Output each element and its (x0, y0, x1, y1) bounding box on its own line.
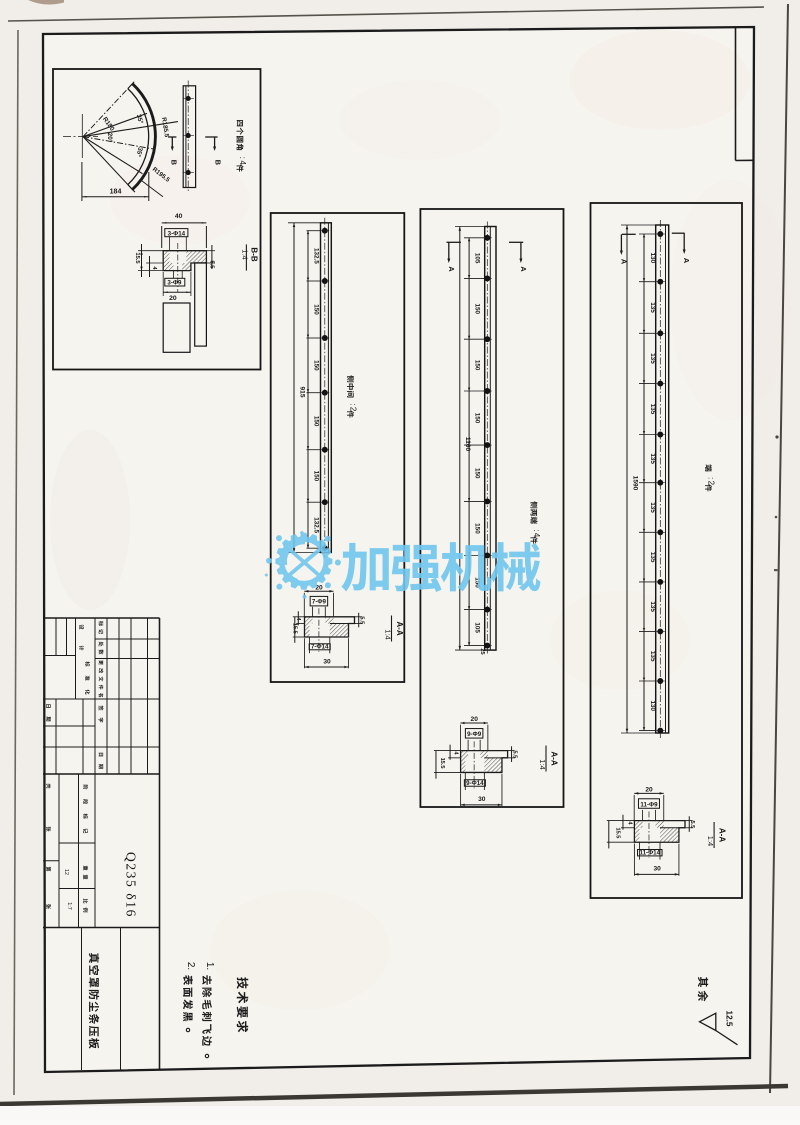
svg-text:150: 150 (312, 304, 319, 315)
svg-text:20°: 20° (106, 133, 114, 143)
svg-text:40: 40 (175, 213, 183, 220)
svg-text::: : (532, 529, 541, 531)
svg-text:30: 30 (653, 866, 661, 873)
svg-text:5.5: 5.5 (689, 820, 695, 828)
svg-text:15.5: 15.5 (134, 252, 140, 264)
svg-text:5.5: 5.5 (208, 260, 214, 269)
svg-text:5.5: 5.5 (511, 750, 517, 758)
svg-text:20: 20 (645, 786, 653, 793)
svg-text:135: 135 (649, 601, 656, 612)
svg-text:135: 135 (649, 453, 656, 464)
svg-text:135: 135 (649, 353, 656, 364)
svg-text:A-A: A-A (718, 828, 727, 842)
svg-text:11-Φ14: 11-Φ14 (640, 850, 661, 857)
svg-text:B: B (213, 160, 222, 166)
svg-text:A-A: A-A (395, 621, 404, 635)
svg-text:150: 150 (474, 413, 481, 424)
svg-text:4: 4 (532, 533, 541, 538)
svg-text:A: A (519, 266, 528, 272)
svg-text:15.5: 15.5 (614, 827, 620, 838)
svg-text:1:4: 1:4 (706, 836, 715, 846)
svg-text:1590: 1590 (631, 476, 638, 491)
svg-text:150: 150 (474, 360, 481, 371)
svg-text:184: 184 (110, 188, 122, 195)
svg-text:105: 105 (474, 622, 481, 633)
svg-text::: : (238, 157, 247, 159)
svg-text:150: 150 (474, 304, 481, 315)
svg-text:2: 2 (349, 407, 358, 411)
svg-text:915: 915 (298, 386, 305, 397)
svg-text:150: 150 (312, 416, 319, 427)
svg-text:5.5: 5.5 (359, 616, 365, 624)
svg-text:1:4: 1:4 (538, 759, 547, 769)
svg-text:132.5: 132.5 (312, 517, 319, 533)
svg-text:1:7: 1:7 (66, 902, 72, 910)
svg-text:1:4: 1:4 (383, 629, 392, 639)
svg-text:A-A: A-A (550, 751, 559, 765)
svg-text::: : (349, 403, 358, 405)
svg-text:12.5: 12.5 (724, 1011, 733, 1027)
svg-text:15.5: 15.5 (439, 758, 445, 769)
svg-text:135: 135 (649, 502, 656, 513)
svg-text:1.: 1. (204, 962, 215, 970)
svg-text:130: 130 (649, 701, 656, 712)
svg-text:3-Φ14: 3-Φ14 (168, 230, 186, 237)
svg-text:Q235 δ16: Q235 δ16 (124, 852, 139, 918)
svg-text:1160: 1160 (464, 437, 471, 452)
svg-text:130: 130 (649, 253, 656, 264)
svg-text:105: 105 (474, 253, 481, 264)
svg-text:135: 135 (649, 302, 656, 313)
svg-text:2: 2 (707, 481, 716, 485)
svg-text:A: A (619, 259, 628, 265)
svg-text:12: 12 (63, 869, 69, 875)
svg-text:7-Φ9: 7-Φ9 (312, 598, 327, 605)
svg-text:132.5: 132.5 (312, 248, 319, 264)
svg-text:20: 20 (169, 295, 177, 302)
svg-text:3-Φ9: 3-Φ9 (167, 280, 182, 287)
svg-text:9-Φ9: 9-Φ9 (467, 731, 482, 738)
svg-text:150: 150 (312, 471, 319, 482)
svg-text:150: 150 (474, 468, 481, 479)
svg-text:15.5: 15.5 (291, 623, 297, 634)
svg-text:11-Φ9: 11-Φ9 (640, 801, 658, 808)
svg-text:135: 135 (649, 404, 656, 415)
svg-text:1:4: 1:4 (240, 249, 249, 259)
svg-text:150: 150 (474, 523, 481, 534)
svg-text:B: B (169, 160, 178, 166)
svg-text:4: 4 (238, 161, 247, 166)
svg-text:A: A (447, 266, 456, 272)
svg-text:20: 20 (471, 716, 479, 723)
svg-text:135: 135 (649, 552, 656, 563)
svg-text:135: 135 (649, 651, 656, 662)
svg-text:9-Φ14: 9-Φ14 (466, 780, 484, 787)
svg-text:25: 25 (479, 648, 485, 654)
svg-text:B-B: B-B (250, 247, 259, 261)
svg-text:30: 30 (323, 659, 331, 666)
svg-text::: : (707, 477, 716, 479)
svg-text:2.: 2. (185, 962, 196, 970)
svg-text:150: 150 (312, 360, 319, 371)
svg-text:7-Φ14: 7-Φ14 (311, 644, 329, 651)
svg-text:30: 30 (478, 796, 486, 803)
svg-text:A: A (682, 258, 691, 264)
